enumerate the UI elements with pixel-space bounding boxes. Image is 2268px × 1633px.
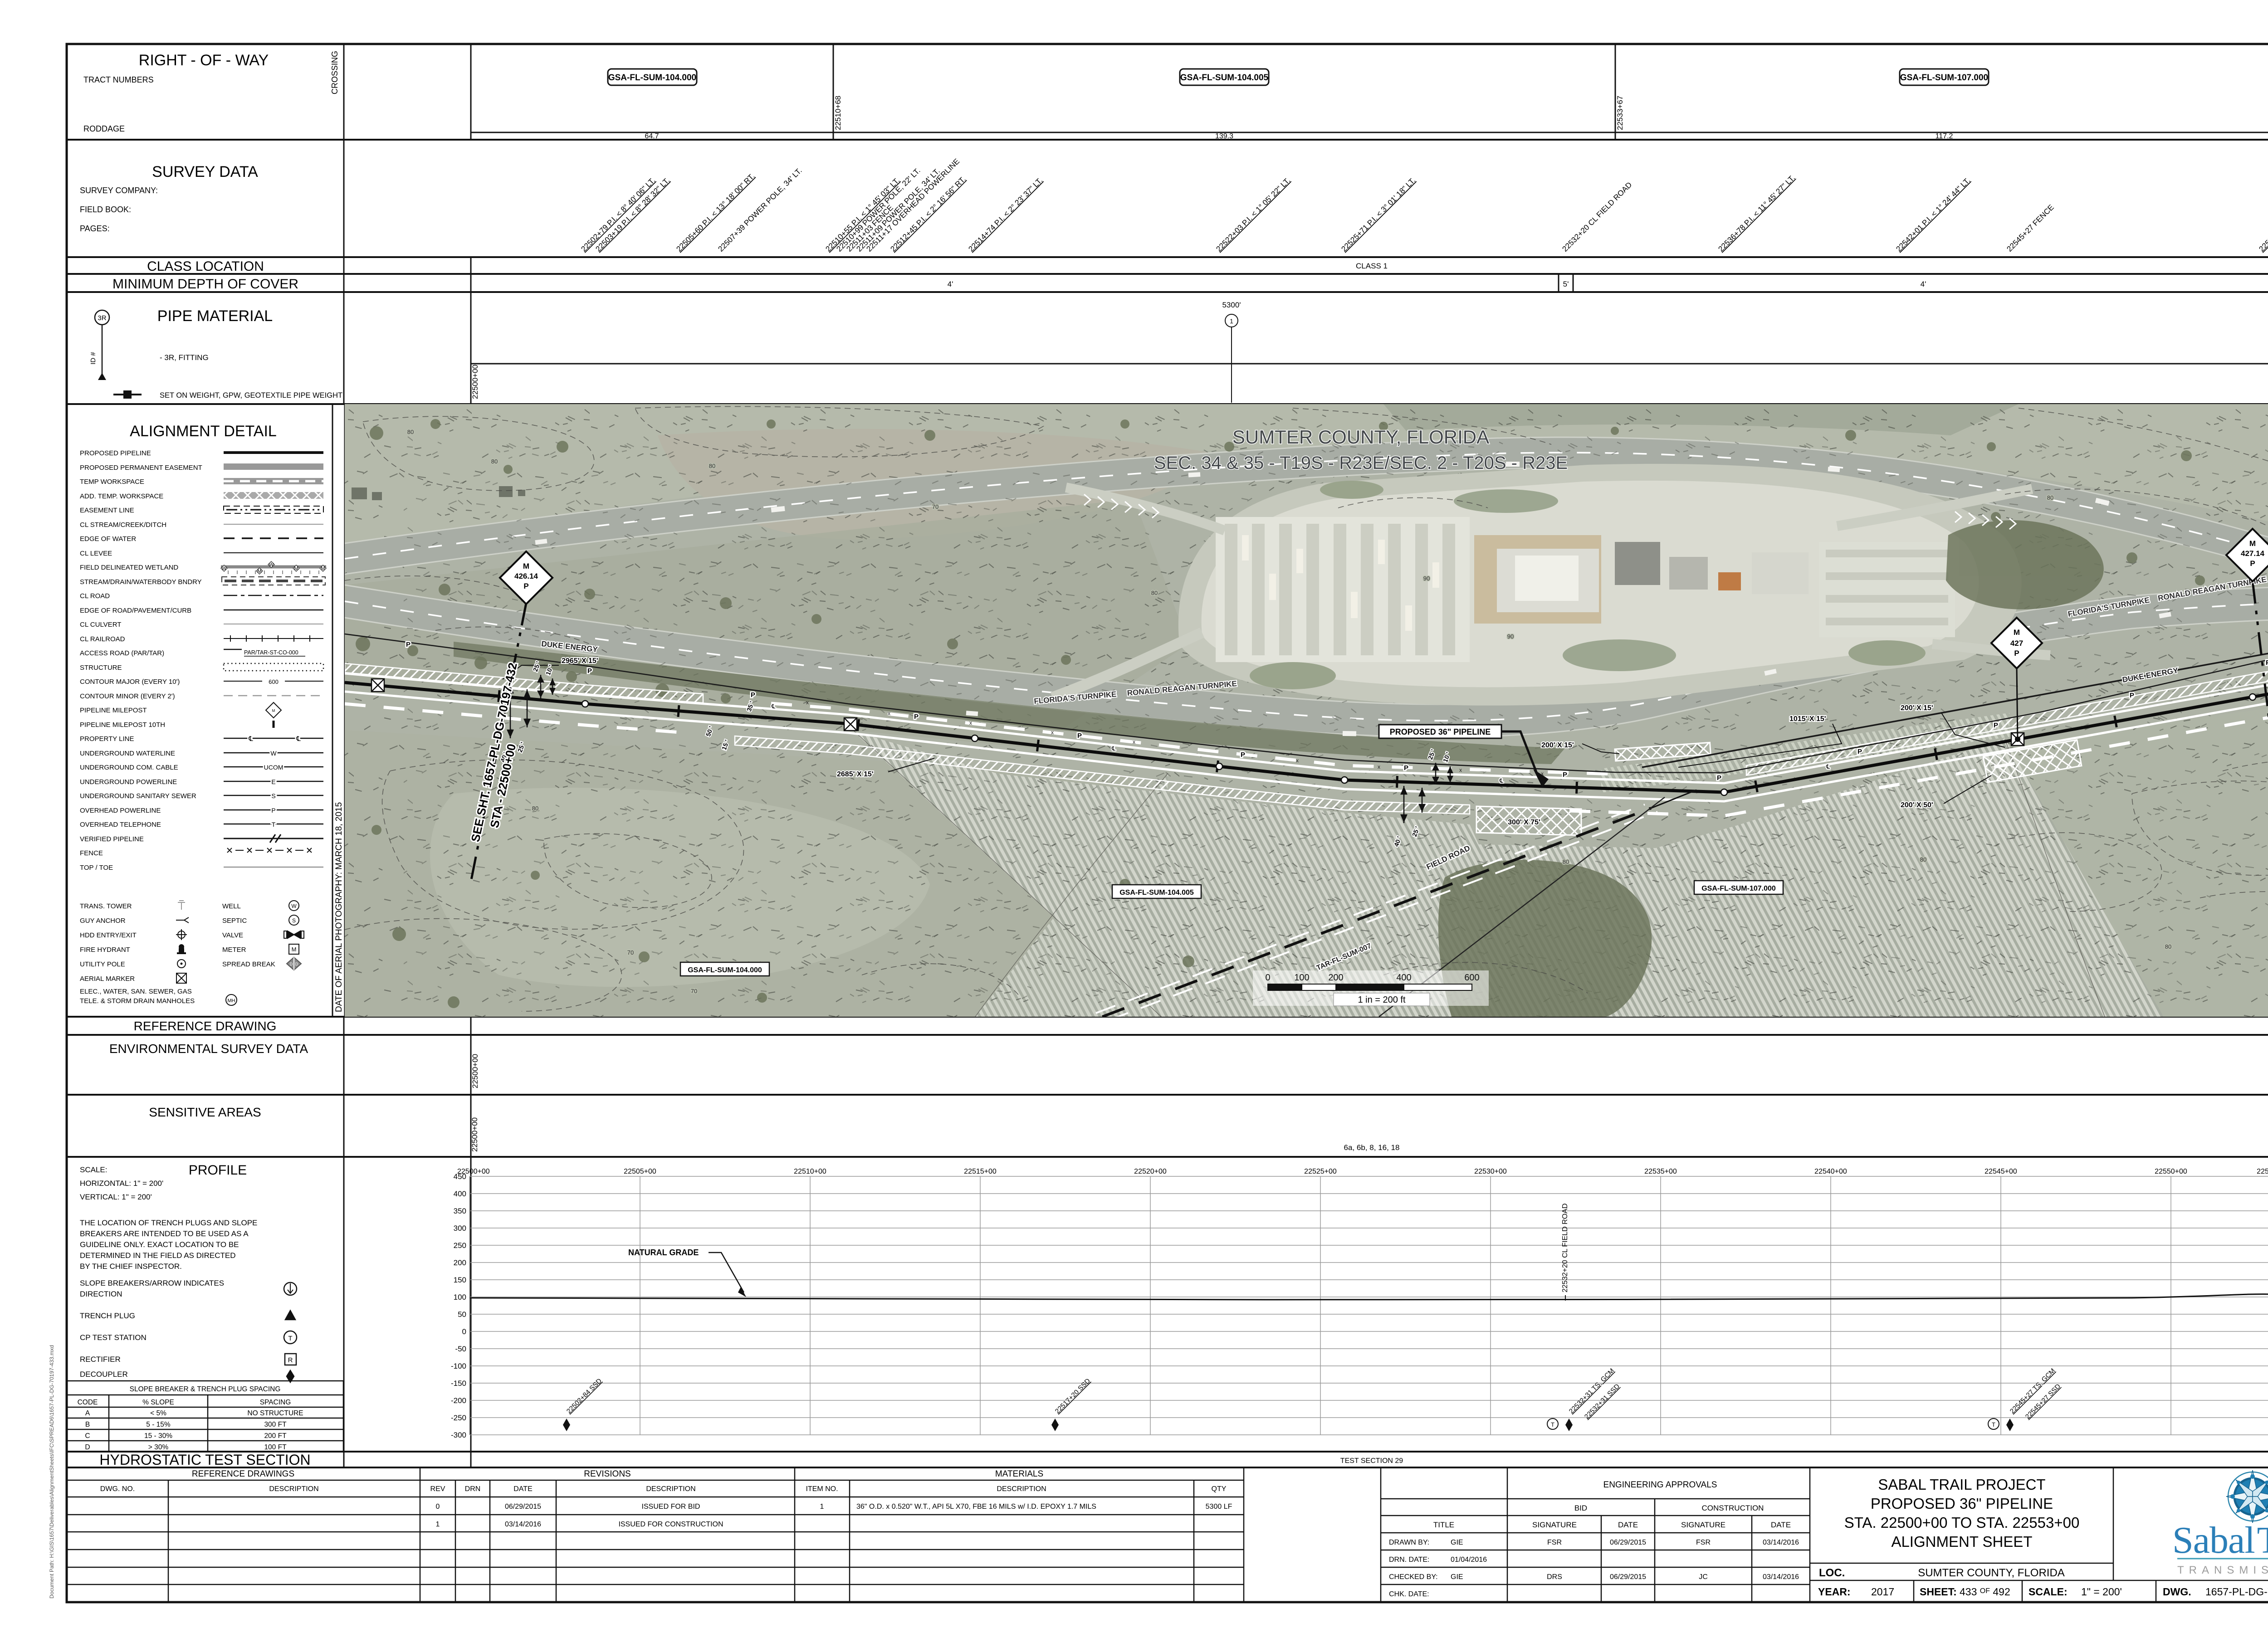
svg-text:80: 80 xyxy=(709,463,715,469)
svg-text:06/29/2015: 06/29/2015 xyxy=(1610,1573,1646,1581)
svg-text:01/04/2016: 01/04/2016 xyxy=(1451,1556,1487,1564)
svg-text:DATE OF AERIAL PHOTOGRAPHY: MA: DATE OF AERIAL PHOTOGRAPHY: MARCH 18, 20… xyxy=(334,802,344,1012)
svg-text:TOP / TOE: TOP / TOE xyxy=(80,864,113,872)
svg-text:36" O.D. x 0.520" W.T., API 5L: 36" O.D. x 0.520" W.T., API 5L X70, FBE … xyxy=(856,1503,1096,1511)
svg-text:M: M xyxy=(523,562,529,570)
svg-text:DIRECTION: DIRECTION xyxy=(80,1290,122,1298)
svg-text:BID: BID xyxy=(1574,1504,1587,1512)
svg-text:STRUCTURE: STRUCTURE xyxy=(80,664,122,672)
svg-text:TRACT NUMBERS: TRACT NUMBERS xyxy=(83,75,154,84)
svg-text:CHECKED BY:: CHECKED BY: xyxy=(1389,1573,1438,1581)
svg-text:REFERENCE DRAWING: REFERENCE DRAWING xyxy=(134,1019,277,1033)
svg-text:GSA-FL-SUM-104.005: GSA-FL-SUM-104.005 xyxy=(1119,889,1194,897)
svg-text:90: 90 xyxy=(1507,633,1514,640)
svg-text:DRAWN BY:: DRAWN BY: xyxy=(1389,1539,1429,1546)
svg-text:E: E xyxy=(271,778,275,785)
svg-text:0: 0 xyxy=(1265,973,1270,983)
svg-text:P: P xyxy=(2130,692,2134,699)
svg-text:ISSUED FOR BID: ISSUED FOR BID xyxy=(642,1503,700,1511)
svg-text:FSR: FSR xyxy=(1696,1539,1711,1546)
svg-text:VERTICAL: 1" = 200': VERTICAL: 1" = 200' xyxy=(80,1193,152,1201)
svg-text:22545+00: 22545+00 xyxy=(1984,1168,2017,1175)
svg-text:DESCRIPTION: DESCRIPTION xyxy=(997,1485,1046,1493)
svg-text:DRN: DRN xyxy=(465,1485,481,1493)
svg-text:22525+00: 22525+00 xyxy=(1304,1168,1337,1175)
svg-text:GSA-FL-SUM-107.000: GSA-FL-SUM-107.000 xyxy=(1701,885,1776,892)
svg-text:80: 80 xyxy=(1563,858,1569,865)
svg-text:SABAL TRAIL PROJECT: SABAL TRAIL PROJECT xyxy=(1878,1476,2045,1493)
svg-text:200: 200 xyxy=(454,1258,466,1267)
svg-text:-300: -300 xyxy=(451,1431,466,1439)
svg-text:x: x xyxy=(969,720,972,726)
svg-text:CL ROAD: CL ROAD xyxy=(80,592,110,600)
svg-text:DECOUPLER: DECOUPLER xyxy=(80,1370,128,1379)
svg-text:1 in = 200 ft: 1 in = 200 ft xyxy=(1358,995,1406,1005)
svg-text:100 FT: 100 FT xyxy=(264,1443,287,1451)
svg-text:D: D xyxy=(85,1443,90,1451)
svg-text:1: 1 xyxy=(436,1521,440,1528)
svg-text:PIPELINE MILEPOST 10TH: PIPELINE MILEPOST 10TH xyxy=(80,721,165,729)
svg-text:ALIGNMENT DETAIL: ALIGNMENT DETAIL xyxy=(130,423,277,440)
svg-text:P: P xyxy=(914,713,919,721)
svg-text:300' X 75': 300' X 75' xyxy=(1508,819,1540,826)
svg-text:TITLE: TITLE xyxy=(1433,1521,1454,1529)
svg-text:BY THE CHIEF INSPECTOR.: BY THE CHIEF INSPECTOR. xyxy=(80,1262,182,1271)
svg-text:REVISIONS: REVISIONS xyxy=(584,1469,631,1479)
svg-text:ENGINEERING APPROVALS: ENGINEERING APPROVALS xyxy=(1603,1480,1717,1490)
svg-text:CONSTRUCTION: CONSTRUCTION xyxy=(1702,1504,1764,1512)
svg-text:P: P xyxy=(1857,748,1862,756)
svg-text:22510+68: 22510+68 xyxy=(834,96,842,130)
svg-text:< 5%: < 5% xyxy=(150,1409,166,1417)
svg-text:CROSSING: CROSSING xyxy=(330,51,339,94)
svg-text:200 FT: 200 FT xyxy=(264,1432,287,1440)
svg-text:22540+00: 22540+00 xyxy=(1814,1168,1847,1175)
svg-text:℄: ℄ xyxy=(248,735,253,743)
svg-text:HORIZONTAL: 1" = 200': HORIZONTAL: 1" = 200' xyxy=(80,1179,163,1188)
svg-text:250: 250 xyxy=(454,1241,466,1250)
svg-text:SCALE:: SCALE: xyxy=(2028,1586,2068,1598)
svg-text:80: 80 xyxy=(2165,943,2171,950)
svg-text:P: P xyxy=(523,582,528,590)
svg-text:VALVE: VALVE xyxy=(222,931,243,939)
svg-text:x: x xyxy=(806,699,809,706)
svg-text:LOC.: LOC. xyxy=(1819,1567,1845,1579)
svg-text:℄: ℄ xyxy=(1826,763,1830,770)
svg-text:UNDERGROUND POWERLINE: UNDERGROUND POWERLINE xyxy=(80,778,177,786)
svg-text:-150: -150 xyxy=(451,1379,466,1388)
svg-text:22500+00: 22500+00 xyxy=(470,1117,479,1152)
svg-text:FENCE: FENCE xyxy=(80,849,103,857)
svg-text:5': 5' xyxy=(1563,280,1569,288)
svg-text:22500+00: 22500+00 xyxy=(457,1168,490,1175)
svg-text:DESCRIPTION: DESCRIPTION xyxy=(269,1485,318,1493)
svg-text:CONTOUR MAJOR (EVERY 10'): CONTOUR MAJOR (EVERY 10') xyxy=(80,678,180,686)
svg-text:P: P xyxy=(1077,732,1082,740)
svg-text:DATE: DATE xyxy=(1771,1521,1791,1529)
svg-text:ENVIRONMENTAL SURVEY DATA: ENVIRONMENTAL SURVEY DATA xyxy=(109,1042,308,1056)
svg-text:22500+00: 22500+00 xyxy=(471,365,479,399)
svg-text:% SLOPE: % SLOPE xyxy=(142,1399,174,1406)
svg-text:THE LOCATION OF TRENCH PLUGS A: THE LOCATION OF TRENCH PLUGS AND SLOPE xyxy=(80,1219,257,1227)
svg-text:GSA-FL-SUM-104.000: GSA-FL-SUM-104.000 xyxy=(688,966,762,974)
svg-text:400: 400 xyxy=(454,1189,466,1198)
svg-text:GSA-FL-SUM-104.005: GSA-FL-SUM-104.005 xyxy=(1180,73,1269,83)
svg-text:T: T xyxy=(1551,1421,1554,1428)
svg-text:TELE. & STORM DRAIN MANHOLES: TELE. & STORM DRAIN MANHOLES xyxy=(80,997,195,1005)
svg-text:300: 300 xyxy=(454,1224,466,1233)
svg-text:P: P xyxy=(751,691,755,699)
svg-text:SURVEY DATA: SURVEY DATA xyxy=(152,163,258,180)
svg-text:x: x xyxy=(1296,757,1299,764)
svg-text:1657-PL-DG-70197-433: 1657-PL-DG-70197-433 xyxy=(2205,1586,2268,1598)
svg-text:5 - 15%: 5 - 15% xyxy=(146,1421,171,1428)
svg-text:OVERHEAD POWERLINE: OVERHEAD POWERLINE xyxy=(80,807,161,814)
svg-text:22533+67: 22533+67 xyxy=(1616,96,1624,130)
svg-text:D: D xyxy=(290,962,293,966)
svg-text:EDGE OF ROAD/PAVEMENT/CURB: EDGE OF ROAD/PAVEMENT/CURB xyxy=(80,607,191,614)
svg-text:> 30%: > 30% xyxy=(148,1443,169,1451)
svg-text:RECTIFIER: RECTIFIER xyxy=(80,1355,121,1364)
svg-text:T: T xyxy=(288,1335,292,1342)
svg-text:RIGHT - OF - WAY: RIGHT - OF - WAY xyxy=(139,52,269,69)
svg-text:AERIAL MARKER: AERIAL MARKER xyxy=(80,975,135,983)
svg-text:SHEET:: SHEET: xyxy=(1920,1586,1957,1598)
svg-text:CL CULVERT: CL CULVERT xyxy=(80,621,121,629)
svg-text:DWG. NO.: DWG. NO. xyxy=(100,1485,135,1493)
svg-text:22532+20 CL FIELD ROAD: 22532+20 CL FIELD ROAD xyxy=(1561,1204,1569,1292)
svg-text:SPREAD BREAK: SPREAD BREAK xyxy=(222,960,275,968)
svg-text:C: C xyxy=(85,1432,90,1440)
svg-text:UNDERGROUND COM. CABLE: UNDERGROUND COM. CABLE xyxy=(80,764,178,771)
svg-text:0: 0 xyxy=(436,1503,440,1511)
svg-text:22510+00: 22510+00 xyxy=(794,1168,826,1175)
svg-text:NATURAL GRADE: NATURAL GRADE xyxy=(628,1248,699,1257)
svg-text:SLOPE BREAKER & TRENCH PLUG SP: SLOPE BREAKER & TRENCH PLUG SPACING xyxy=(130,1385,281,1393)
svg-text:x: x xyxy=(1459,767,1462,773)
svg-text:SLOPE BREAKERS/ARROW INDICATES: SLOPE BREAKERS/ARROW INDICATES xyxy=(80,1279,224,1287)
svg-text:R: R xyxy=(288,1356,293,1364)
svg-text:℄: ℄ xyxy=(1499,777,1504,784)
svg-text:1" = 200': 1" = 200' xyxy=(2081,1586,2122,1598)
svg-text:22553+00: 22553+00 xyxy=(2257,1168,2268,1175)
svg-text:SURVEY COMPANY:: SURVEY COMPANY: xyxy=(80,186,158,195)
svg-text:80: 80 xyxy=(1920,856,1926,863)
svg-text:DATE: DATE xyxy=(1618,1521,1638,1529)
svg-text:1015' X 15': 1015' X 15' xyxy=(1789,715,1826,723)
svg-text:P: P xyxy=(1241,751,1245,759)
svg-text:22505+00: 22505+00 xyxy=(624,1168,656,1175)
svg-text:W: W xyxy=(222,566,227,571)
svg-text:PROPOSED PIPELINE: PROPOSED PIPELINE xyxy=(80,449,151,457)
svg-text:SIGNATURE: SIGNATURE xyxy=(1532,1521,1577,1529)
svg-text:6a, 6b, 8, 16, 18: 6a, 6b, 8, 16, 18 xyxy=(1344,1143,1400,1152)
svg-text:117.2: 117.2 xyxy=(1936,132,1953,140)
svg-text:TRANSMISSION: TRANSMISSION xyxy=(2177,1564,2268,1576)
svg-text:FSR: FSR xyxy=(1547,1539,1562,1546)
svg-text:300 FT: 300 FT xyxy=(264,1421,287,1428)
svg-text:5300': 5300' xyxy=(1222,301,1241,309)
svg-text:80: 80 xyxy=(2047,494,2053,501)
svg-text:REFERENCE DRAWINGS: REFERENCE DRAWINGS xyxy=(192,1469,294,1479)
svg-text:GIE: GIE xyxy=(1451,1573,1463,1581)
svg-text:22500+00: 22500+00 xyxy=(471,1054,479,1088)
svg-text:HDD ENTRY/EXIT: HDD ENTRY/EXIT xyxy=(80,931,137,939)
svg-text:OVERHEAD TELEPHONE: OVERHEAD TELEPHONE xyxy=(80,821,161,829)
svg-text:D: D xyxy=(295,962,298,966)
svg-text:ACCESS ROAD (PAR/TAR): ACCESS ROAD (PAR/TAR) xyxy=(80,649,164,657)
svg-text:PAGES:: PAGES: xyxy=(80,224,110,233)
svg-text:SCALE:: SCALE: xyxy=(80,1165,107,1174)
svg-text:5300 LF: 5300 LF xyxy=(1206,1503,1232,1511)
svg-text:350: 350 xyxy=(454,1207,466,1215)
svg-text:CL LEVEE: CL LEVEE xyxy=(80,550,112,557)
svg-text:CONTOUR MINOR (EVERY 2'): CONTOUR MINOR (EVERY 2') xyxy=(80,692,175,700)
svg-text:JC: JC xyxy=(1699,1573,1708,1581)
svg-text:HYDROSTATIC TEST SECTION: HYDROSTATIC TEST SECTION xyxy=(99,1452,310,1468)
svg-text:x: x xyxy=(1133,739,1135,745)
svg-text:A: A xyxy=(85,1409,90,1417)
svg-text:W: W xyxy=(270,750,277,757)
svg-text:STA. 22500+00 TO STA. 22553+00: STA. 22500+00 TO STA. 22553+00 xyxy=(1844,1514,2080,1531)
svg-text:P: P xyxy=(1563,771,1567,779)
svg-text:ELEC., WATER, SAN. SEWER, GAS: ELEC., WATER, SAN. SEWER, GAS xyxy=(80,988,192,995)
svg-text:M: M xyxy=(257,569,261,574)
svg-text:℄: ℄ xyxy=(1111,745,1116,752)
svg-text:80: 80 xyxy=(491,458,498,465)
svg-text:PAR/TAR-ST-CO-000: PAR/TAR-ST-CO-000 xyxy=(244,649,298,656)
svg-text:GSA-FL-SUM-107.000: GSA-FL-SUM-107.000 xyxy=(1900,73,1988,83)
svg-text:UCOM: UCOM xyxy=(264,764,283,771)
svg-text:UNDERGROUND SANITARY SEWER: UNDERGROUND SANITARY SEWER xyxy=(80,792,196,800)
svg-text:YEAR:: YEAR: xyxy=(1818,1586,1851,1598)
svg-text:SabalTrail: SabalTrail xyxy=(2172,1519,2268,1561)
svg-text:80: 80 xyxy=(407,429,414,435)
svg-text:BREAKERS ARE INTENDED TO BE US: BREAKERS ARE INTENDED TO BE USED AS A xyxy=(80,1229,249,1238)
svg-text:DWG.: DWG. xyxy=(2163,1586,2191,1598)
svg-text:TRANS. TOWER: TRANS. TOWER xyxy=(80,902,132,910)
svg-text:22535+00: 22535+00 xyxy=(1644,1168,1677,1175)
svg-text:EDGE OF WATER: EDGE OF WATER xyxy=(80,535,136,543)
svg-text:M: M xyxy=(292,946,297,953)
svg-text:03/14/2016: 03/14/2016 xyxy=(1763,1573,1799,1581)
svg-text:W: W xyxy=(291,903,297,909)
svg-text:22530+00: 22530+00 xyxy=(1474,1168,1507,1175)
svg-text:SUMTER COUNTY, FLORIDA: SUMTER COUNTY, FLORIDA xyxy=(1232,426,1489,448)
svg-text:DRN. DATE:: DRN. DATE: xyxy=(1389,1556,1429,1564)
svg-text:S: S xyxy=(292,917,296,924)
svg-text:MINIMUM DEPTH OF COVER: MINIMUM DEPTH OF COVER xyxy=(112,277,298,292)
svg-text:SEC. 34 & 35 - T19S - R23E/SEC: SEC. 34 & 35 - T19S - R23E/SEC. 2 - T20S… xyxy=(1154,453,1568,473)
svg-text:TEMP WORKSPACE: TEMP WORKSPACE xyxy=(80,478,144,486)
svg-text:70: 70 xyxy=(627,949,634,956)
svg-text:4': 4' xyxy=(948,280,953,288)
svg-text:METER: METER xyxy=(222,946,246,954)
svg-text:PROPOSED 36" PIPELINE: PROPOSED 36" PIPELINE xyxy=(1390,727,1491,736)
svg-text:427: 427 xyxy=(2010,639,2023,648)
svg-text:200' X 50': 200' X 50' xyxy=(1901,801,1933,809)
svg-text:SPACING: SPACING xyxy=(260,1399,291,1406)
svg-text:B: B xyxy=(85,1421,90,1428)
svg-text:CLASS 1: CLASS 1 xyxy=(1356,262,1388,270)
svg-text:T: T xyxy=(272,821,276,828)
svg-text:CLASS LOCATION: CLASS LOCATION xyxy=(147,259,264,274)
svg-text:0: 0 xyxy=(462,1327,466,1336)
svg-text:P: P xyxy=(1994,721,1998,729)
svg-text:GUY ANCHOR: GUY ANCHOR xyxy=(80,917,126,925)
svg-text:4': 4' xyxy=(1921,280,1926,288)
svg-text:427.14: 427.14 xyxy=(2241,549,2265,558)
svg-text:SEPTIC: SEPTIC xyxy=(222,917,247,925)
svg-text:SET ON WEIGHT, GPW, GEOTEXTILE: SET ON WEIGHT, GPW, GEOTEXTILE PIPE WEIG… xyxy=(160,391,342,400)
svg-text:CL RAILROAD: CL RAILROAD xyxy=(80,635,125,643)
svg-text:P: P xyxy=(406,641,411,648)
svg-text:Document Path: H:\GIS\1657\Del: Document Path: H:\GIS\1657\Deliverables\… xyxy=(49,1345,55,1599)
svg-text:STREAM/DRAIN/WATERBODY BNDRY: STREAM/DRAIN/WATERBODY BNDRY xyxy=(80,578,202,586)
svg-text:x: x xyxy=(1051,729,1054,736)
svg-text:UNDERGROUND WATERLINE: UNDERGROUND WATERLINE xyxy=(80,750,175,757)
svg-text:WELL: WELL xyxy=(222,902,241,910)
svg-text:200' X 15': 200' X 15' xyxy=(1901,704,1933,712)
svg-text:PIPE MATERIAL: PIPE MATERIAL xyxy=(157,307,273,325)
svg-text:600: 600 xyxy=(269,678,279,685)
svg-text:REV: REV xyxy=(430,1485,445,1493)
svg-text:150: 150 xyxy=(454,1276,466,1284)
svg-text:MATERIALS: MATERIALS xyxy=(995,1469,1043,1479)
svg-text:80: 80 xyxy=(532,805,538,812)
svg-text:CODE: CODE xyxy=(78,1399,98,1406)
svg-text:GUIDELINE ONLY. EXACT LOCATIO: GUIDELINE ONLY. EXACT LOCATION TO BE xyxy=(80,1240,239,1249)
svg-text:M: M xyxy=(2014,628,2020,637)
svg-text:1: 1 xyxy=(1230,317,1233,325)
svg-text:QTY: QTY xyxy=(1212,1485,1227,1493)
svg-text:90: 90 xyxy=(1423,575,1430,582)
svg-text:VERIFIED PIPELINE: VERIFIED PIPELINE xyxy=(80,835,144,843)
svg-text:03/14/2016: 03/14/2016 xyxy=(1763,1539,1799,1546)
svg-text:SENSITIVE AREAS: SENSITIVE AREAS xyxy=(149,1105,261,1119)
svg-text:GIE: GIE xyxy=(1451,1539,1463,1546)
svg-text:100: 100 xyxy=(454,1293,466,1302)
svg-text:CL STREAM/CREEK/DITCH: CL STREAM/CREEK/DITCH xyxy=(80,521,166,529)
svg-text:SIGNATURE: SIGNATURE xyxy=(1681,1521,1725,1529)
svg-text:70: 70 xyxy=(691,988,697,994)
svg-text:GSA-FL-SUM-104.000: GSA-FL-SUM-104.000 xyxy=(608,73,696,83)
svg-text:EASEMENT LINE: EASEMENT LINE xyxy=(80,507,134,514)
svg-text:P: P xyxy=(1404,764,1408,772)
svg-text:DESCRIPTION: DESCRIPTION xyxy=(646,1485,695,1493)
svg-text:-200: -200 xyxy=(451,1396,466,1405)
svg-text:2017: 2017 xyxy=(1871,1586,1894,1598)
svg-text:139.3: 139.3 xyxy=(1215,132,1233,140)
svg-text:100: 100 xyxy=(1294,973,1309,983)
svg-text:MH: MH xyxy=(227,998,235,1004)
svg-text:03/14/2016: 03/14/2016 xyxy=(505,1521,541,1528)
svg-text:M: M xyxy=(2249,539,2256,548)
svg-text:22515+00: 22515+00 xyxy=(964,1168,997,1175)
svg-text:S: S xyxy=(271,792,275,799)
svg-text:DETERMINED IN THE FIELD AS DIR: DETERMINED IN THE FIELD AS DIRECTED xyxy=(80,1251,236,1260)
svg-text:ADD. TEMP. WORKSPACE: ADD. TEMP. WORKSPACE xyxy=(80,492,163,500)
svg-text:FIELD DELINEATED WETLAND: FIELD DELINEATED WETLAND xyxy=(80,564,178,571)
svg-text:DATE: DATE xyxy=(513,1485,532,1493)
svg-text:P: P xyxy=(2266,659,2268,667)
svg-text:2965' X 15': 2965' X 15' xyxy=(562,657,598,665)
svg-text:400: 400 xyxy=(1396,973,1411,983)
svg-text:-100: -100 xyxy=(451,1362,466,1370)
svg-text:P: P xyxy=(271,807,275,814)
svg-text:CHK. DATE:: CHK. DATE: xyxy=(1389,1590,1429,1598)
svg-text:x: x xyxy=(888,710,890,717)
svg-text:06/29/2015: 06/29/2015 xyxy=(1610,1539,1646,1546)
svg-text:64.7: 64.7 xyxy=(645,132,659,140)
svg-text:℄: ℄ xyxy=(771,703,776,710)
svg-text:- 3R, FITTING: - 3R, FITTING xyxy=(160,353,209,362)
svg-text:NO STRUCTURE: NO STRUCTURE xyxy=(247,1409,303,1417)
svg-text:06/29/2015: 06/29/2015 xyxy=(505,1503,541,1511)
svg-text:℄: ℄ xyxy=(296,735,301,743)
svg-text:W: W xyxy=(269,562,274,568)
svg-text:DRS: DRS xyxy=(1547,1573,1562,1581)
svg-text:22520+00: 22520+00 xyxy=(1134,1168,1167,1175)
svg-text:50: 50 xyxy=(458,1310,466,1319)
svg-text:80: 80 xyxy=(1151,590,1158,596)
svg-text:SUMTER COUNTY, FLORIDA: SUMTER COUNTY, FLORIDA xyxy=(1918,1567,2065,1579)
svg-text:FIELD BOOK:: FIELD BOOK: xyxy=(80,205,131,214)
svg-text:200: 200 xyxy=(1328,973,1343,983)
svg-text:P: P xyxy=(587,667,592,675)
svg-text:22550+00: 22550+00 xyxy=(2155,1168,2187,1175)
svg-text:CP TEST STATION: CP TEST STATION xyxy=(80,1333,147,1342)
svg-text:P: P xyxy=(1717,774,1721,782)
svg-text:TRENCH PLUG: TRENCH PLUG xyxy=(80,1311,135,1320)
svg-text:UTILITY POLE: UTILITY POLE xyxy=(80,960,125,968)
svg-text:M: M xyxy=(294,566,298,571)
svg-text:ID #: ID # xyxy=(89,352,97,365)
svg-text:P: P xyxy=(2250,559,2255,568)
svg-text:600: 600 xyxy=(1464,973,1479,983)
svg-text:PROPOSED PERMANENT EASEMENT: PROPOSED PERMANENT EASEMENT xyxy=(80,464,202,472)
svg-text:M: M xyxy=(272,709,275,713)
svg-text:200' X 15': 200' X 15' xyxy=(1541,741,1574,749)
svg-text:1: 1 xyxy=(820,1503,824,1511)
svg-text:426.14: 426.14 xyxy=(514,572,538,580)
svg-text:PIPELINE MILEPOST: PIPELINE MILEPOST xyxy=(80,707,147,714)
svg-text:T: T xyxy=(1992,1421,1995,1428)
svg-text:RODDAGE: RODDAGE xyxy=(83,124,125,133)
svg-text:M: M xyxy=(321,566,325,571)
svg-text:3R: 3R xyxy=(98,314,106,322)
svg-text:ISSUED FOR CONSTRUCTION: ISSUED FOR CONSTRUCTION xyxy=(618,1521,723,1528)
svg-text:70: 70 xyxy=(932,503,938,510)
svg-text:TEST SECTION 29: TEST SECTION 29 xyxy=(1340,1457,1403,1465)
svg-text:-50: -50 xyxy=(455,1345,466,1353)
svg-text:PROFILE: PROFILE xyxy=(189,1163,247,1178)
svg-text:2685' X 15': 2685' X 15' xyxy=(837,770,874,778)
svg-text:-250: -250 xyxy=(451,1414,466,1422)
svg-text:FIRE HYDRANT: FIRE HYDRANT xyxy=(80,946,130,954)
svg-text:ITEM NO.: ITEM NO. xyxy=(806,1485,838,1493)
svg-text:P: P xyxy=(2014,649,2019,658)
svg-text:15 - 30%: 15 - 30% xyxy=(144,1432,172,1440)
svg-text:x: x xyxy=(1378,764,1380,770)
svg-text:PROPERTY LINE: PROPERTY LINE xyxy=(80,735,134,743)
svg-text:PROPOSED 36" PIPELINE: PROPOSED 36" PIPELINE xyxy=(1871,1495,2053,1512)
svg-text:ALIGNMENT SHEET: ALIGNMENT SHEET xyxy=(1891,1533,2032,1550)
